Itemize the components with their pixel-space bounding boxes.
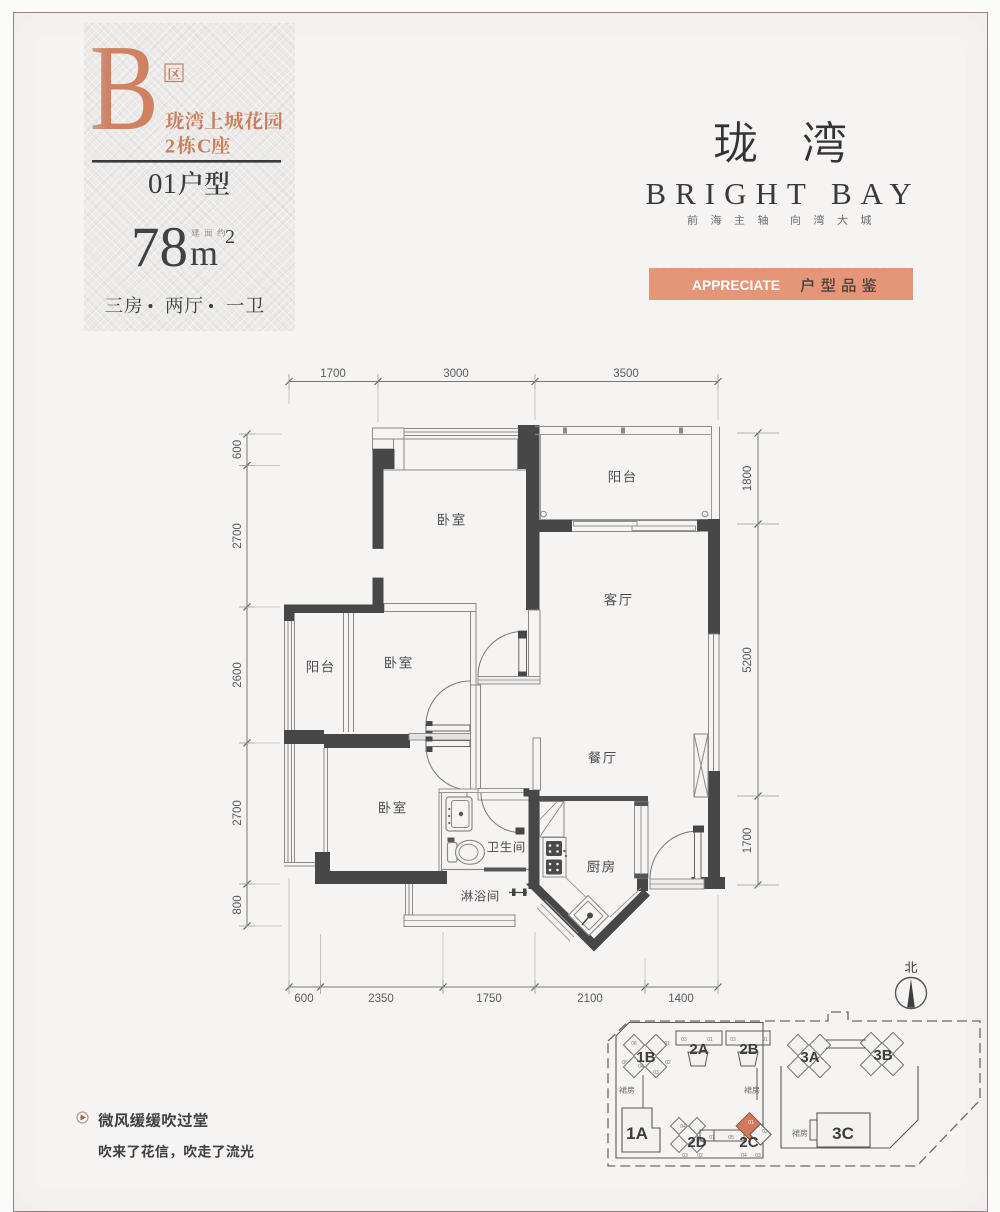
svg-text:3500: 3500 [613, 368, 639, 380]
svg-text:2700: 2700 [232, 800, 244, 826]
svg-text:2: 2 [165, 136, 175, 158]
svg-text:03: 03 [682, 1153, 688, 1159]
svg-text:02: 02 [762, 1129, 768, 1135]
svg-text:03: 03 [681, 1037, 687, 1043]
svg-text:03: 03 [755, 1153, 761, 1159]
svg-text:02: 02 [697, 1153, 703, 1159]
svg-text:2600: 2600 [232, 662, 244, 688]
svg-text:APPRECIATE: APPRECIATE [692, 278, 780, 293]
svg-text:01: 01 [148, 168, 177, 200]
svg-text:2A: 2A [689, 1041, 708, 1058]
svg-text:C: C [197, 136, 211, 158]
svg-text:02: 02 [665, 1060, 671, 1066]
svg-text:06: 06 [631, 1041, 637, 1047]
svg-text:2: 2 [225, 226, 235, 248]
svg-text:m: m [190, 233, 218, 273]
svg-text:BRIGHT BAY: BRIGHT BAY [645, 176, 920, 211]
svg-text:04: 04 [680, 1124, 686, 1130]
svg-text:3A: 3A [800, 1049, 819, 1066]
svg-text:3C: 3C [832, 1124, 854, 1143]
svg-text:04: 04 [638, 1064, 644, 1070]
svg-text:03: 03 [653, 1070, 659, 1076]
svg-text:01: 01 [664, 1041, 670, 1047]
svg-text:1750: 1750 [476, 993, 502, 1005]
svg-text:600: 600 [294, 993, 313, 1005]
svg-text:5200: 5200 [742, 647, 754, 673]
svg-text:1800: 1800 [742, 466, 754, 492]
svg-text:2C: 2C [739, 1134, 758, 1151]
svg-text:01: 01 [748, 1120, 754, 1126]
svg-text:03: 03 [730, 1037, 736, 1043]
svg-text:2700: 2700 [232, 523, 244, 549]
svg-text:3000: 3000 [443, 368, 469, 380]
svg-text:1700: 1700 [742, 828, 754, 854]
svg-text:01: 01 [762, 1037, 768, 1043]
svg-text:1400: 1400 [668, 993, 694, 1005]
svg-text:78: 78 [131, 216, 188, 279]
svg-text:2350: 2350 [368, 993, 394, 1005]
svg-text:B: B [90, 20, 159, 156]
svg-text:3B: 3B [873, 1047, 892, 1064]
svg-text:05: 05 [622, 1060, 628, 1066]
svg-text:04: 04 [741, 1153, 747, 1159]
svg-text:1700: 1700 [320, 368, 346, 380]
svg-text:2D: 2D [687, 1134, 706, 1151]
svg-text:600: 600 [232, 440, 244, 459]
svg-text:1A: 1A [626, 1124, 648, 1143]
svg-text:05: 05 [728, 1135, 734, 1141]
svg-text:2100: 2100 [577, 993, 603, 1005]
svg-text:2B: 2B [739, 1041, 758, 1058]
svg-text:800: 800 [232, 895, 244, 914]
